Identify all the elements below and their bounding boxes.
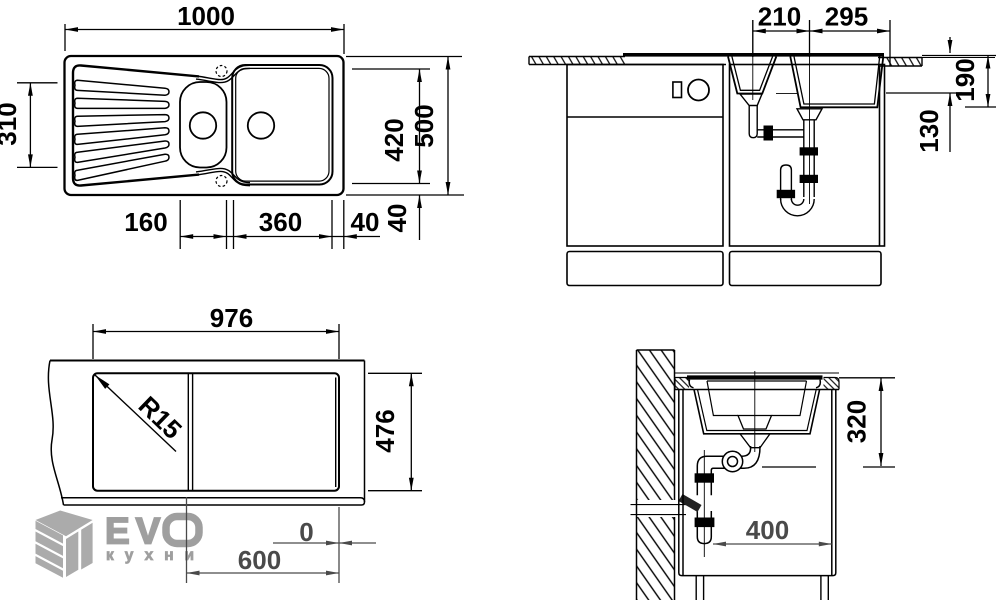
svg-text:EV: EV bbox=[105, 511, 166, 552]
svg-text:1000: 1000 bbox=[177, 1, 235, 31]
svg-text:0: 0 bbox=[299, 517, 313, 547]
svg-text:310: 310 bbox=[0, 102, 22, 145]
svg-text:360: 360 bbox=[259, 207, 302, 237]
svg-text:40: 40 bbox=[382, 204, 412, 233]
svg-text:976: 976 bbox=[210, 303, 253, 333]
svg-text:160: 160 bbox=[124, 207, 167, 237]
svg-text:600: 600 bbox=[238, 545, 281, 575]
svg-text:130: 130 bbox=[914, 109, 944, 152]
svg-text:500: 500 bbox=[409, 104, 439, 147]
svg-text:кухни: кухни bbox=[106, 547, 205, 564]
svg-text:210: 210 bbox=[758, 2, 801, 32]
svg-text:400: 400 bbox=[746, 515, 789, 545]
svg-text:476: 476 bbox=[370, 409, 400, 452]
svg-text:420: 420 bbox=[379, 118, 409, 161]
svg-text:40: 40 bbox=[351, 207, 380, 237]
svg-text:320: 320 bbox=[842, 400, 872, 443]
svg-text:295: 295 bbox=[825, 2, 868, 32]
svg-text:190: 190 bbox=[950, 58, 980, 101]
